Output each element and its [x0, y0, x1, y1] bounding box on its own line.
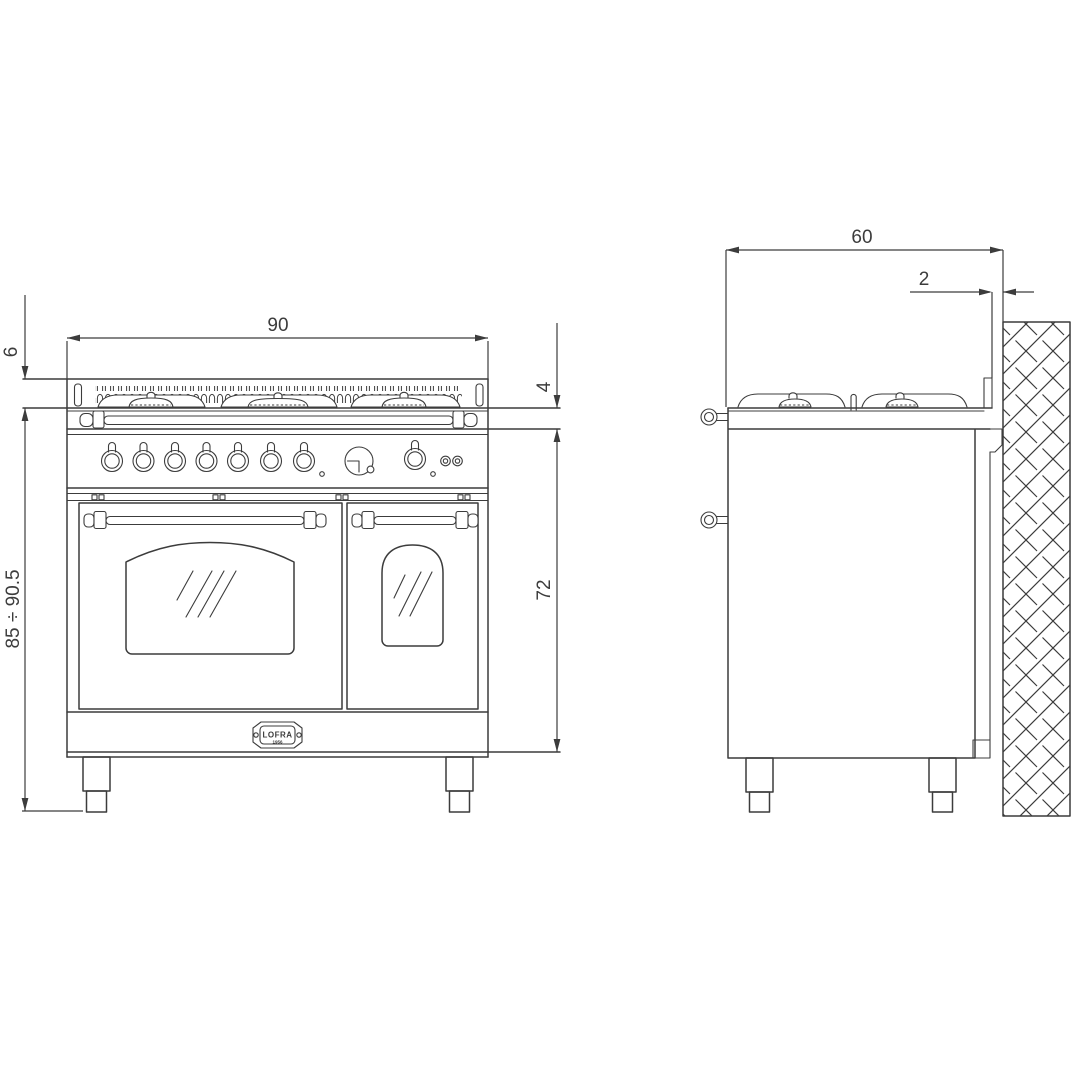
control-knob [261, 443, 282, 472]
side-foot-rear-upper [929, 758, 956, 792]
burner-cap-right [382, 398, 426, 407]
badge-brand-text: LOFRA [262, 731, 292, 740]
backguard-strip [984, 378, 992, 408]
front-view: LOFRA 1956 90 6 [1, 295, 560, 812]
control-knob [294, 443, 315, 472]
side-feet [746, 758, 956, 812]
hinge-tick [99, 495, 104, 500]
wall-section [1003, 322, 1070, 816]
rail-ring-left [93, 411, 104, 428]
main-door-window [126, 543, 294, 655]
small-door-handle [352, 512, 478, 529]
main-door-handle [84, 512, 326, 529]
burner-knobs [102, 443, 315, 472]
side-burner-cap-rear [886, 399, 918, 407]
plinth: LOFRA 1956 [67, 712, 560, 757]
control-knob [196, 443, 217, 472]
dim-width-90: 90 [67, 315, 488, 379]
side-foot-front-lower [750, 792, 770, 812]
foot-left-upper [83, 757, 110, 791]
brand-badge: LOFRA 1956 [253, 722, 302, 748]
hinge-tick [220, 495, 225, 500]
main-oven-door [79, 503, 342, 709]
front-hob-top [23, 379, 560, 757]
dim-width-label: 90 [267, 315, 288, 336]
side-body [701, 408, 1002, 758]
dim-pan-support-6: 6 [1, 295, 28, 421]
dim-hob-rim-4: 4 [534, 323, 560, 408]
hob-right-trim [476, 384, 483, 406]
wall-hatch [1003, 322, 1070, 816]
oven-knob [405, 441, 426, 470]
front-rail [80, 411, 477, 428]
burner-nub-left [147, 392, 155, 398]
window-glass-reflection [177, 571, 236, 617]
control-knob [133, 443, 154, 472]
hinge-band [67, 495, 488, 501]
side-handle-end [701, 512, 728, 528]
control-knob [228, 443, 249, 472]
panel-screw-left [320, 472, 325, 477]
side-burner-cap-front [779, 399, 811, 407]
hinge-tick [336, 495, 341, 500]
indicator-lights [441, 456, 463, 466]
dim-body-height-label: 72 [534, 579, 555, 600]
burner-cap-left [129, 398, 173, 407]
side-dimensions: 60 2 [726, 227, 1034, 407]
control-knob [165, 443, 186, 472]
dim-hob-rim-label: 4 [534, 381, 555, 392]
dim-body-height-72: 72 [534, 429, 560, 752]
side-rail-end [701, 409, 728, 425]
dim-wall-clearance-label: 2 [919, 269, 930, 290]
side-foot-front-upper [746, 758, 773, 792]
small-door-window [382, 545, 443, 646]
foot-right-upper [446, 757, 473, 791]
side-burner-nub-rear [896, 393, 904, 399]
window-glass-reflection [394, 572, 432, 616]
side-foot-rear-lower [933, 792, 953, 812]
foot-right-lower [450, 791, 470, 812]
burner-nub-center [274, 393, 282, 399]
small-oven-door [347, 503, 478, 709]
burner-cap-center [248, 399, 308, 408]
rail-end-cap-right [464, 414, 477, 427]
foot-left-lower [87, 791, 107, 812]
clock-adjust-knob [367, 466, 374, 473]
panel-screw-right [431, 472, 436, 477]
front-feet [83, 757, 473, 812]
clock-dial [345, 447, 374, 475]
burner-nub-right [400, 392, 408, 398]
rail-bar [104, 416, 453, 425]
oven-doors [79, 503, 478, 709]
side-hob-profile [728, 378, 992, 411]
control-panel [67, 429, 560, 494]
hinge-tick [213, 495, 218, 500]
dim-depth-60: 60 [726, 227, 1003, 407]
side-body-outline [728, 408, 990, 758]
dim-pan-support-label: 6 [1, 347, 22, 358]
dim-depth-label: 60 [851, 227, 872, 248]
rail-end-cap-left [80, 414, 93, 427]
rail-ring-right [453, 411, 464, 428]
dim-overall-height-label: 85 ÷ 90.5 [3, 569, 24, 648]
hinge-tick [465, 495, 470, 500]
hinge-tick [458, 495, 463, 500]
side-view: 60 2 [701, 227, 1070, 816]
side-back-bracket [990, 429, 1002, 452]
hinge-tick [343, 495, 348, 500]
side-burner-nub-front [789, 393, 797, 399]
hob-left-trim [75, 384, 82, 406]
dim-overall-height: 85 ÷ 90.5 [3, 408, 83, 811]
hinge-tick [92, 495, 97, 500]
control-knob [102, 443, 123, 472]
range-cooker-dimension-drawing: LOFRA 1956 90 6 [0, 0, 1080, 1080]
badge-subtext: 1956 [272, 740, 283, 745]
